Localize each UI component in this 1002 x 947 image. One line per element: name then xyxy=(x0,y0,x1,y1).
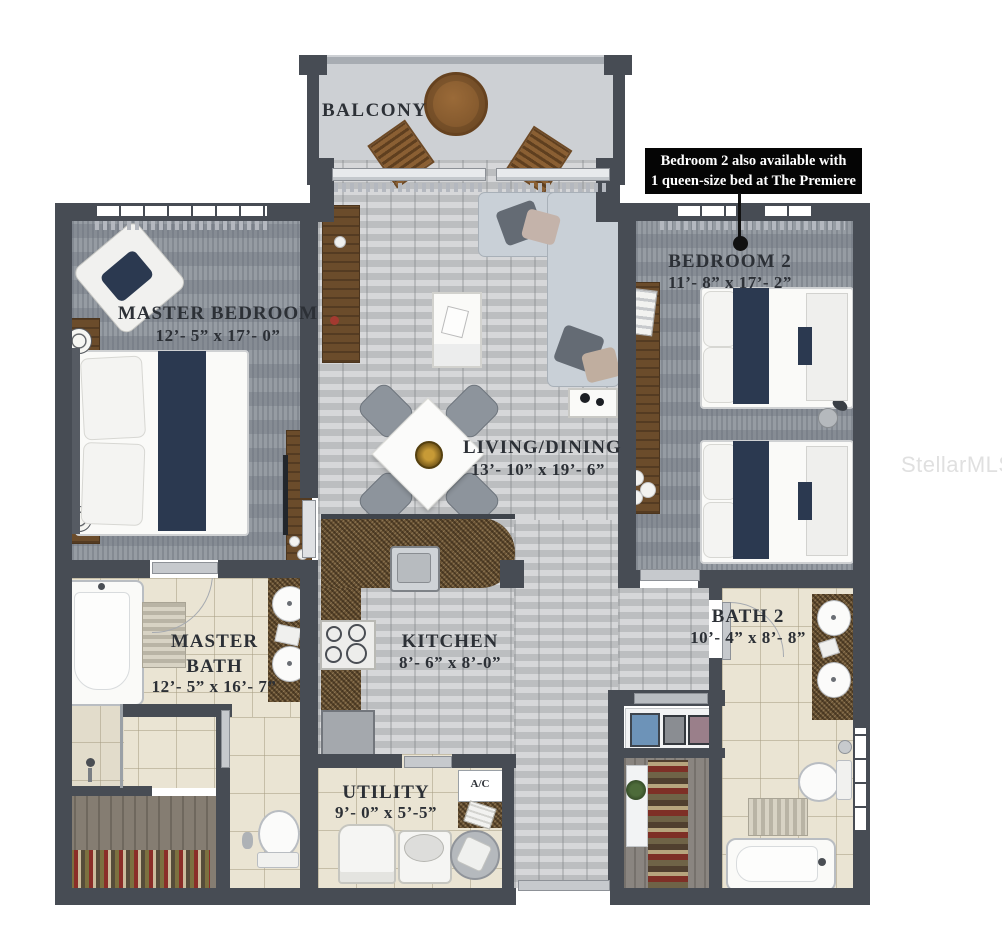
bed2-headboard xyxy=(806,446,848,556)
entry-hall-floor xyxy=(514,520,618,888)
shower-head xyxy=(86,758,95,767)
shelf-frame-mauve xyxy=(688,715,711,745)
master-bath-door xyxy=(152,562,218,574)
bed2-pillow-a xyxy=(703,444,737,500)
entry-threshold xyxy=(518,880,610,891)
master-toilet-brush xyxy=(242,832,253,849)
master-toilet-bowl xyxy=(258,810,300,858)
master-tub-basin xyxy=(74,592,130,690)
counter-end-stub xyxy=(500,560,524,588)
floor-plan: BALCONY xyxy=(0,0,1002,947)
balcony-table xyxy=(424,72,488,136)
bath2-tub-faucet xyxy=(818,858,826,866)
closet-slider xyxy=(634,693,708,704)
living-dining-label: LIVING/DINING xyxy=(463,436,613,461)
master-toilet-door xyxy=(221,710,230,768)
master-pillow-2 xyxy=(81,442,146,526)
utility-dims: 9’- 0” x 5’-5” xyxy=(311,802,461,824)
master-closet-top-wall xyxy=(62,786,152,796)
kitchen-counter-edge xyxy=(321,514,515,519)
shower-glass xyxy=(120,704,123,788)
burner-2 xyxy=(348,624,366,642)
bed1-runner xyxy=(733,288,769,404)
living-dining-dims: 13’- 10” x 19’- 6” xyxy=(463,459,613,481)
bath2-window xyxy=(855,728,866,832)
burner-1 xyxy=(326,626,342,642)
annotation-callout: Bedroom 2 also available with 1 queen-si… xyxy=(645,148,862,194)
utility-door xyxy=(404,756,452,768)
balcony-rail xyxy=(307,57,625,64)
kitchen-masterbath-wall xyxy=(300,560,318,905)
bedroom2-side-table xyxy=(818,408,838,428)
bed1-headboard xyxy=(806,293,848,401)
bath2-sink-1-drain xyxy=(831,615,836,620)
bath2-sprayer xyxy=(838,740,852,754)
annotation-leader-line xyxy=(738,193,741,239)
living-bedroom2-wall xyxy=(618,203,636,575)
master-sink-2-drain xyxy=(287,661,292,666)
living-curtain-left xyxy=(334,183,482,192)
hall-runner-rug xyxy=(648,760,688,888)
master-decor-1 xyxy=(289,536,300,547)
closet-left-wall xyxy=(608,690,624,905)
master-sink-1-drain xyxy=(287,601,292,606)
burner-4 xyxy=(346,643,367,664)
outer-wall-left xyxy=(55,203,72,905)
master-bath-label: MASTER BATH xyxy=(152,630,277,679)
kitchen-sink-basin xyxy=(397,553,431,583)
shelf-frame-blue xyxy=(630,713,660,747)
bed2-pillow-b xyxy=(703,502,737,558)
bath2-mat xyxy=(748,798,808,836)
washer xyxy=(338,824,396,884)
bottom-wall xyxy=(55,888,870,905)
bath2-tub-basin xyxy=(736,846,818,882)
shelf-bottom-wall xyxy=(608,748,725,758)
annotation-line2: 1 queen-size bed at The Premiere xyxy=(645,171,862,191)
living-curtain-right xyxy=(498,183,606,192)
master-toilet-tank xyxy=(257,852,299,868)
dryer-lid xyxy=(404,834,444,862)
bedroom2-window-right xyxy=(763,206,813,216)
kitchen-label: KITCHEN xyxy=(375,630,525,655)
living-console-decor-white xyxy=(334,236,346,248)
bed2-runner xyxy=(733,441,769,559)
master-bedroom-curtain xyxy=(95,221,267,230)
bedroom2-window-left xyxy=(676,206,736,216)
top-wall-right-wing xyxy=(618,203,870,221)
utility-right-wall xyxy=(502,754,514,905)
utility-top-wall-a xyxy=(318,754,402,768)
bath2-sink-2-drain xyxy=(831,677,836,682)
balcony-sliding-door-left xyxy=(332,168,486,181)
master-bed-runner xyxy=(158,351,206,531)
bedroom2-curtain xyxy=(660,221,845,230)
bedroom2-label: BEDROOM 2 xyxy=(655,250,805,275)
bath2-toilet-bowl xyxy=(798,762,840,802)
hall-plant xyxy=(626,780,646,800)
bedroom2-door xyxy=(640,569,700,581)
annotation-line1: Bedroom 2 also available with xyxy=(645,151,862,171)
bed1-pillow-b xyxy=(703,347,737,403)
master-tv xyxy=(283,455,288,535)
shower-handle xyxy=(88,768,92,782)
bath2-dims: 10’- 4” x 8’- 8” xyxy=(673,627,823,649)
master-bedroom-label: MASTER BEDROOM xyxy=(93,302,343,327)
sofa-side-table xyxy=(568,388,618,418)
master-door xyxy=(302,500,316,558)
bath2-label: BATH 2 xyxy=(673,605,823,630)
bed1-throw xyxy=(798,327,812,365)
balcony-label: BALCONY xyxy=(322,99,422,124)
master-closet-rug xyxy=(70,850,210,888)
master-tub-faucet xyxy=(98,583,105,590)
bed1-pillow-a xyxy=(703,291,737,347)
master-bath-dims: 12’- 5” x 16’- 7” xyxy=(139,676,289,698)
bedroom2-dims: 11’- 8” x 17’- 2” xyxy=(650,272,810,294)
annotation-leader-dot xyxy=(733,236,748,251)
side-table-decor-1 xyxy=(580,393,590,403)
dining-centerpiece xyxy=(415,441,443,469)
kitchen-dims: 8’- 6” x 8’-0” xyxy=(375,652,525,674)
ac-label: A/C xyxy=(458,777,502,791)
side-table-decor-2 xyxy=(596,398,604,406)
watermark: StellarMLS xyxy=(901,452,1002,478)
bath2-toilet-tank xyxy=(836,760,852,800)
master-bed-headboard xyxy=(71,348,80,534)
master-pillow-1 xyxy=(80,355,146,440)
master-bedroom-dims: 12’- 5” x 17’- 0” xyxy=(93,325,343,347)
hall-cabinet xyxy=(626,765,648,847)
shelf-frame-gray xyxy=(663,715,686,745)
burner-3 xyxy=(325,646,342,663)
bed2-throw xyxy=(798,482,812,520)
master-bedroom-window xyxy=(95,206,267,216)
balcony-sliding-door-right xyxy=(496,168,610,181)
master-living-wall xyxy=(300,203,318,498)
